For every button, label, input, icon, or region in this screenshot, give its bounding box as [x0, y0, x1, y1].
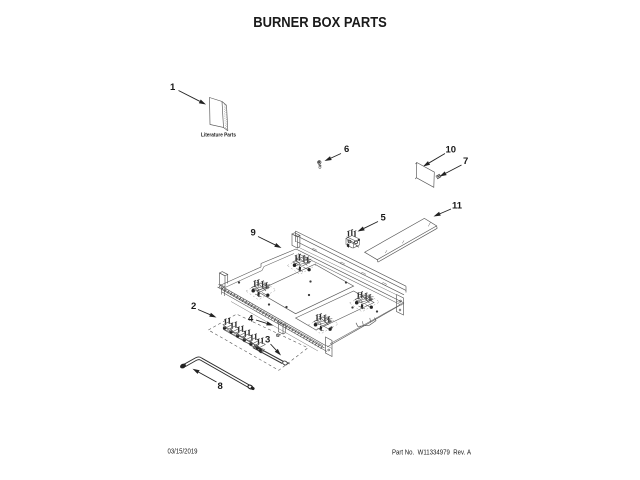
svg-text:7: 7	[463, 156, 468, 167]
svg-text:Part No. W11334979 Rev. A: Part No. W11334979 Rev. A	[392, 450, 471, 457]
svg-text:6: 6	[344, 144, 349, 155]
svg-text:3: 3	[265, 335, 270, 346]
svg-text:11: 11	[452, 201, 463, 212]
svg-text:1: 1	[170, 82, 176, 93]
svg-text:BURNER BOX PARTS: BURNER BOX PARTS	[253, 15, 387, 31]
svg-text:8: 8	[218, 381, 223, 392]
svg-text:2: 2	[191, 301, 196, 312]
svg-text:9: 9	[251, 228, 256, 239]
svg-text:03/15/2019: 03/15/2019	[168, 449, 198, 456]
svg-text:5: 5	[381, 213, 387, 224]
svg-text:10: 10	[446, 145, 457, 156]
svg-text:Literature Parts: Literature Parts	[201, 133, 236, 139]
svg-text:4: 4	[248, 314, 254, 325]
